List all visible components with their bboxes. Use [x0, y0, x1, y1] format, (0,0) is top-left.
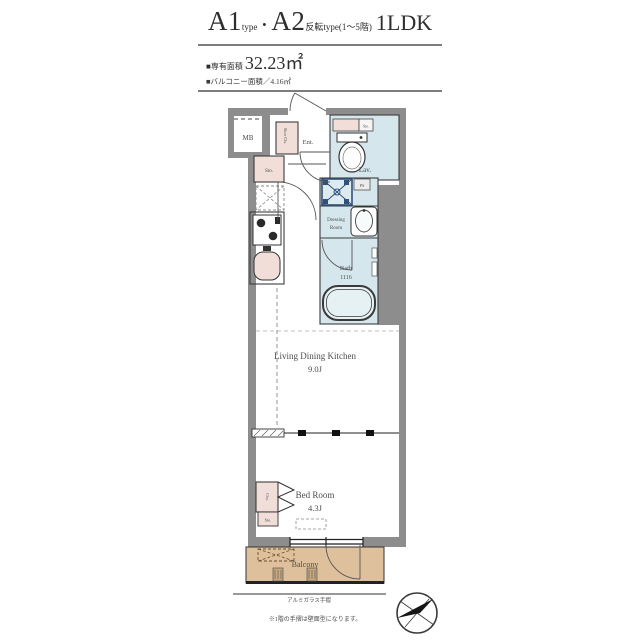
ldk-label: Living Dining Kitchen	[274, 351, 356, 361]
shoe-closet: Shoe Cls.	[276, 122, 298, 154]
shoe-closet-label: Shoe Cls.	[283, 128, 288, 144]
washer-pan	[322, 179, 352, 205]
hall-storage: Sto.	[254, 156, 284, 182]
balcony-area: ■バルコニー面積／4.16㎡	[198, 76, 442, 87]
handrail-annotation: アルミガラス手摺	[233, 594, 386, 604]
bathtub	[323, 286, 375, 320]
pipe-space: PS	[354, 179, 370, 190]
type-a2-floors: (1〜5階)	[339, 22, 372, 32]
title-separator: ・	[257, 19, 271, 34]
dressing-label-2: Room	[330, 226, 342, 231]
balcony: Balcony	[246, 545, 384, 584]
first-floor-note: ※1階の手摺は壁面型になります。	[269, 615, 361, 623]
kitchen-sink	[254, 252, 280, 280]
floor-plan: MB Sto. Lav. Ent. Shoe Cls.	[220, 90, 450, 640]
area-label: ■専有面積	[206, 62, 243, 71]
type-a1: A1	[208, 6, 242, 36]
plan-title: A1type・A2反転type(1〜5階)1LDK	[198, 6, 442, 42]
ps-label: PS	[360, 183, 364, 188]
entrance-label: Ent.	[303, 139, 314, 146]
plan-header: A1type・A2反転type(1〜5階)1LDK ■専有面積32.23㎡ ■バ…	[198, 6, 442, 92]
type-a2: A2	[271, 6, 305, 36]
area-value: 32.23㎡	[245, 53, 304, 73]
closet-label: Clo.	[265, 493, 270, 501]
faucet	[263, 246, 271, 251]
washbasin	[351, 207, 377, 236]
bedroom-label: Bed Room	[296, 490, 335, 500]
type-a2-sub: 反転type	[305, 22, 339, 32]
lav-storage-label: Sto.	[363, 125, 369, 129]
floorplan-page: A1type・A2反転type(1〜5階)1LDK ■専有面積32.23㎡ ■バ…	[0, 0, 640, 640]
meter-box: MB	[228, 108, 270, 158]
sanitary-block: PS Dressing Room Bath 1116	[320, 178, 378, 324]
plan-type: 1LDK	[376, 10, 432, 35]
mb-label: MB	[243, 134, 254, 142]
refrigerator-space	[256, 186, 284, 210]
dressing-label-1: Dressing	[327, 218, 345, 223]
exclusive-area: ■専有面積32.23㎡	[198, 49, 442, 75]
bath-size: 1116	[340, 275, 352, 281]
hall-storage-label: Sto.	[265, 169, 273, 174]
balcony-window	[290, 537, 363, 547]
lav-label: Lav.	[359, 166, 371, 174]
type-a1-sub: type	[242, 22, 258, 32]
header-divider-top	[198, 44, 442, 46]
bedroom-storage-label: Sto.	[265, 518, 272, 523]
ldk-size: 9.0J	[308, 364, 323, 374]
handrail-label: アルミガラス手摺	[287, 596, 331, 604]
compass-icon	[397, 593, 437, 633]
lavatory-room: Sto. Lav.	[330, 115, 399, 180]
bedroom-size: 4.3J	[308, 503, 323, 513]
front-door	[290, 93, 326, 111]
bedroom-storage: Sto.	[258, 512, 278, 526]
